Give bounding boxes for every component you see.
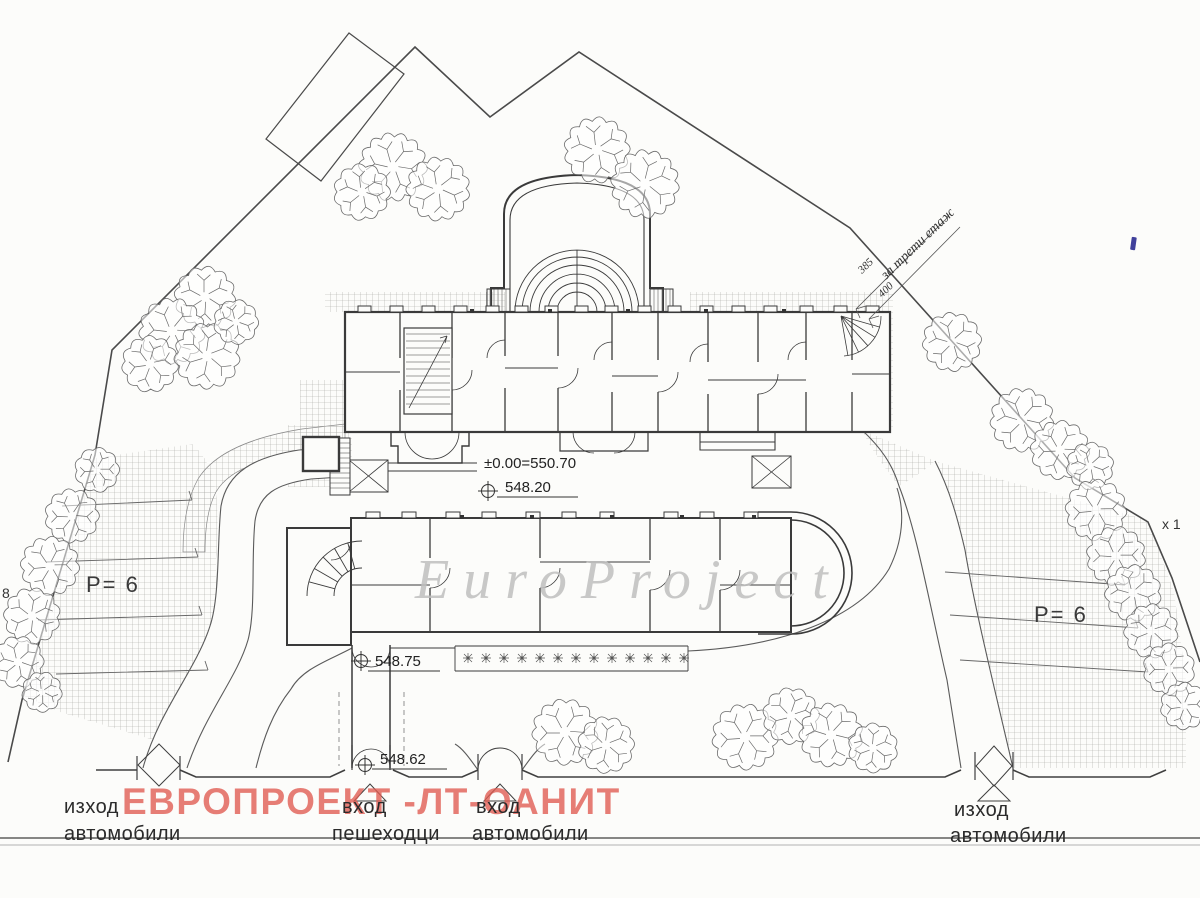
pedestrian-label-2: пешеходци (332, 823, 440, 845)
west-stair-hall (287, 528, 351, 645)
forecourt-elevation-label: 548.20 (505, 479, 551, 496)
parking-left-label: P= 6 (86, 572, 140, 597)
shaft-room (303, 437, 339, 471)
terrace-hatch-west (300, 380, 346, 432)
datum-elevation-label: ±0.00=550.70 (484, 455, 576, 472)
pedestrian-label-1: вход (342, 796, 387, 818)
exit-left-label-2: автомобили (64, 823, 181, 845)
exit-right-label-2: автомобили (950, 825, 1067, 847)
site-plan-drawing: 385 400 за трети етаж ±0.00=550.70 548.2… (0, 0, 1200, 898)
left-edge-mark: 8 (2, 585, 10, 601)
gate-elevation-label: 548.62 (380, 751, 426, 768)
right-edge-mark: х 1 (1162, 516, 1181, 532)
vehicle-entry-label-1: вход (476, 796, 521, 818)
exit-right-label-1: изход (954, 799, 1009, 821)
watermark-euroProject: EuroProject (414, 549, 842, 611)
entry-elevation-label: 548.75 (375, 653, 421, 670)
parking-right-label: P= 6 (1034, 602, 1088, 627)
main-block (345, 306, 890, 432)
exit-left-label-1: изход (64, 796, 119, 818)
vehicle-entry-label-2: автомобили (472, 823, 589, 845)
site-plan-scan: 385 400 за трети етаж ±0.00=550.70 548.2… (0, 0, 1200, 898)
terrace-hatch-left (325, 292, 505, 312)
